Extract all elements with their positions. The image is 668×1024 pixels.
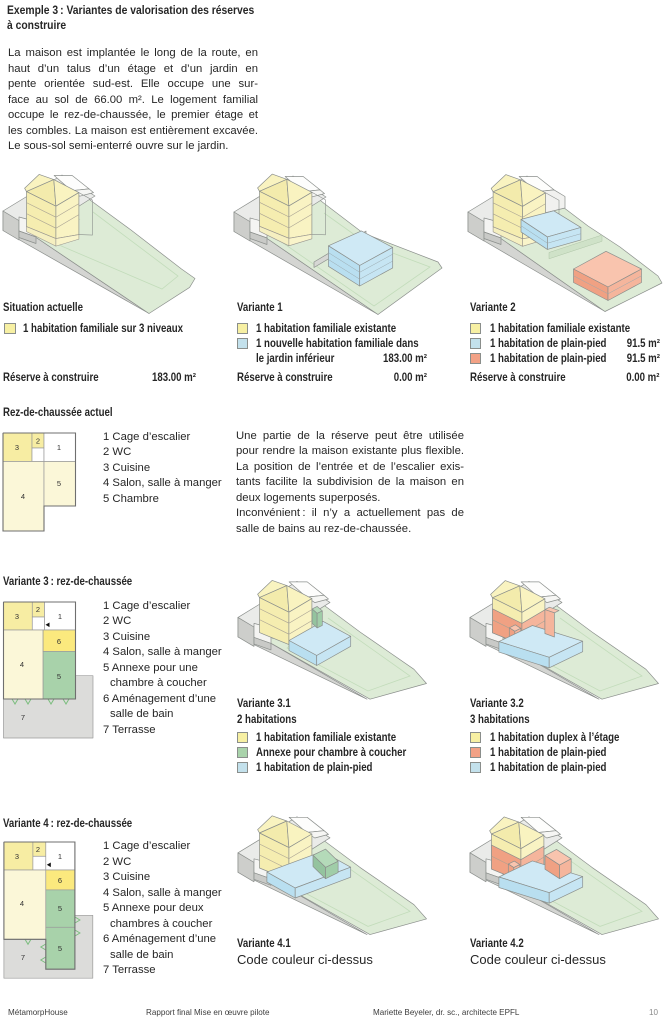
svg-text:4: 4 <box>21 492 25 501</box>
svg-text:3: 3 <box>15 443 19 452</box>
svg-text:4: 4 <box>20 899 24 908</box>
svg-text:4: 4 <box>20 660 24 669</box>
svg-text:2: 2 <box>36 845 40 854</box>
svg-text:1: 1 <box>57 443 61 452</box>
svg-text:3: 3 <box>15 852 19 861</box>
svg-text:2: 2 <box>36 437 40 446</box>
svg-text:1: 1 <box>58 612 62 621</box>
svg-text:7: 7 <box>21 953 25 962</box>
svg-text:1: 1 <box>58 852 62 861</box>
svg-text:7: 7 <box>21 713 25 722</box>
svg-text:6: 6 <box>57 637 61 646</box>
svg-text:5: 5 <box>57 672 61 681</box>
svg-text:5: 5 <box>58 944 62 953</box>
svg-text:6: 6 <box>58 876 62 885</box>
svg-text:2: 2 <box>36 605 40 614</box>
svg-text:5: 5 <box>57 479 61 488</box>
svg-text:5: 5 <box>58 904 62 913</box>
svg-text:3: 3 <box>15 612 19 621</box>
